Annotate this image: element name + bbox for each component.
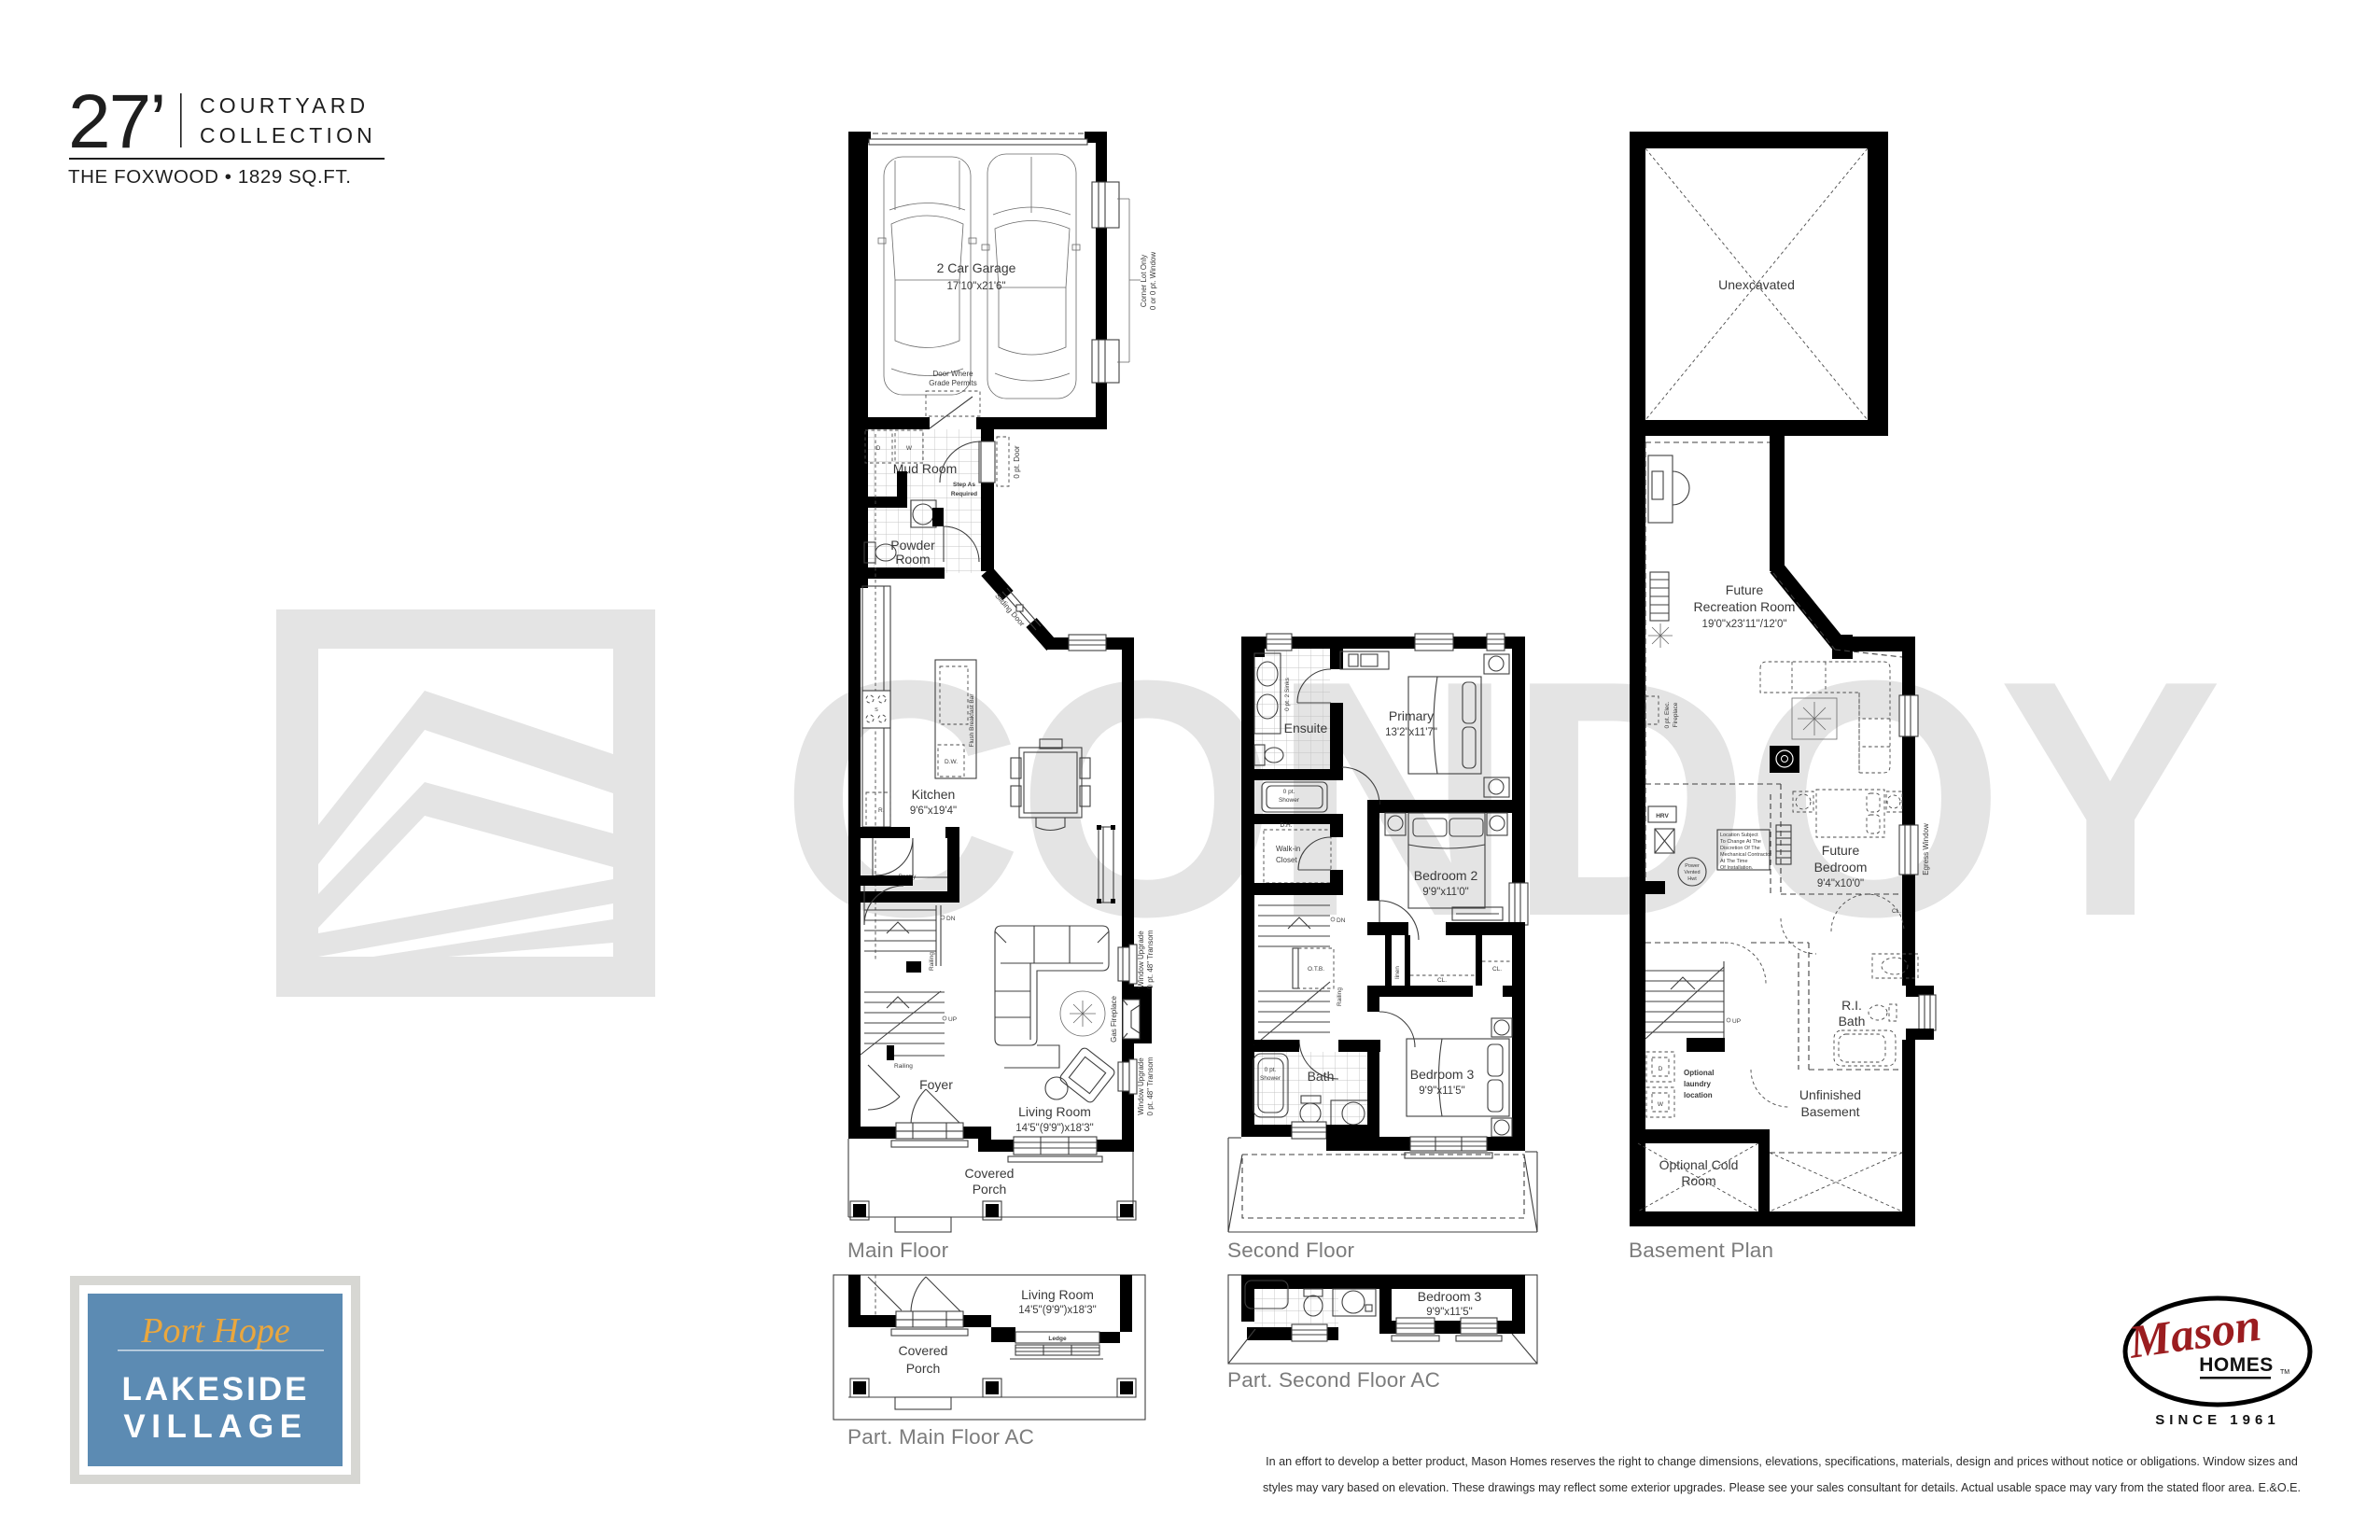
svg-text:UP: UP: [948, 1016, 957, 1023]
svg-text:R.: R.: [878, 807, 885, 814]
svg-text:THE FOXWOOD • 1829 SQ.FT.: THE FOXWOOD • 1829 SQ.FT.: [68, 166, 352, 188]
svg-text:COURTYARD: COURTYARD: [200, 93, 369, 118]
svg-text:laundry: laundry: [1684, 1080, 1711, 1088]
svg-text:Railing: Railing: [894, 1063, 913, 1070]
svg-text:VILLAGE: VILLAGE: [123, 1408, 307, 1445]
svg-text:Future: Future: [1726, 582, 1764, 597]
svg-text:UP: UP: [1732, 1018, 1741, 1025]
svg-text:Ledge: Ledge: [1048, 1336, 1067, 1342]
svg-text:0 pt. 48" Transom: 0 pt. 48" Transom: [1146, 1057, 1155, 1115]
svg-text:Basement: Basement: [1800, 1104, 1859, 1119]
svg-text:Railing: Railing: [1337, 987, 1343, 1006]
svg-text:LAKESIDE: LAKESIDE: [122, 1371, 310, 1407]
svg-text:0 pt. 48" Transom: 0 pt. 48" Transom: [1146, 930, 1155, 988]
svg-text:Covered: Covered: [899, 1343, 948, 1358]
svg-text:2 Car Garage: 2 Car Garage: [937, 260, 1016, 275]
svg-text:linen: linen: [1394, 966, 1401, 979]
svg-text:Primary: Primary: [1389, 708, 1434, 723]
svg-text:Location Subject: Location Subject: [1720, 833, 1758, 838]
svg-text:0 pt.: 0 pt.: [1283, 789, 1295, 795]
svg-text:9'9"x11'5": 9'9"x11'5": [1419, 1085, 1464, 1097]
svg-text:0 pt. Door: 0 pt. Door: [1013, 445, 1021, 478]
svg-text:Covered: Covered: [965, 1166, 1015, 1181]
svg-text:Flush Breakfast Bar: Flush Breakfast Bar: [969, 693, 975, 748]
svg-text:Room: Room: [895, 552, 930, 567]
svg-text:Window Upgrade: Window Upgrade: [1137, 1057, 1145, 1115]
svg-text:Bedroom 2: Bedroom 2: [1414, 868, 1478, 883]
svg-text:In an effort to develop a bett: In an effort to develop a better product…: [1266, 1455, 2298, 1468]
svg-text:Basement Plan: Basement Plan: [1629, 1239, 1773, 1262]
svg-text:Bedroom 3: Bedroom 3: [1418, 1289, 1482, 1304]
svg-text:0 pt.: 0 pt.: [1265, 1067, 1277, 1073]
svg-text:DN: DN: [1337, 917, 1346, 924]
svg-text:Porch: Porch: [906, 1361, 941, 1376]
svg-text:Bedroom: Bedroom: [1814, 860, 1868, 875]
svg-text:Fireplace: Fireplace: [1673, 702, 1679, 727]
svg-text:To Change At The: To Change At The: [1720, 839, 1761, 845]
svg-text:DN: DN: [946, 916, 956, 922]
svg-text:0 or 0 pt. Window: 0 or 0 pt. Window: [1149, 252, 1157, 310]
svg-text:Grade Permits: Grade Permits: [929, 379, 977, 387]
svg-text:Step As: Step As: [953, 482, 975, 488]
svg-text:Egress Window: Egress Window: [1922, 823, 1930, 875]
svg-text:Door Where: Door Where: [932, 370, 973, 378]
svg-text:D: D: [876, 445, 881, 452]
svg-text:Main Floor: Main Floor: [847, 1239, 949, 1262]
svg-text:SINCE 1961: SINCE 1961: [2155, 1412, 2279, 1428]
svg-text:O.T.B.: O.T.B.: [1308, 966, 1324, 973]
svg-text:CL.: CL.: [1437, 977, 1447, 984]
svg-text:Walk-in: Walk-in: [1276, 845, 1300, 853]
svg-text:Closet: Closet: [1276, 856, 1297, 864]
svg-text:styles may vary based on eleva: styles may vary based on elevation. Thes…: [1263, 1481, 2301, 1494]
svg-text:COLLECTION: COLLECTION: [200, 123, 376, 147]
svg-text:13'2"x11'7": 13'2"x11'7": [1385, 727, 1437, 738]
svg-text:Kitchen: Kitchen: [912, 787, 956, 802]
svg-text:Corner Lot Only: Corner Lot Only: [1140, 255, 1148, 307]
svg-text:Bedroom 3: Bedroom 3: [1410, 1067, 1475, 1082]
svg-text:HRV: HRV: [1656, 813, 1669, 819]
svg-text:Gas Fireplace: Gas Fireplace: [1110, 996, 1118, 1043]
svg-text:19'0"x23'11"/12'0": 19'0"x23'11"/12'0": [1702, 619, 1787, 630]
svg-text:CL.: CL.: [1492, 966, 1502, 973]
svg-text:14'5"(9'9")x18'3": 14'5"(9'9")x18'3": [1018, 1305, 1096, 1316]
svg-text:Future: Future: [1822, 843, 1860, 858]
svg-text:W: W: [1658, 1101, 1664, 1108]
svg-text:location: location: [1684, 1091, 1713, 1099]
svg-text:R.I.: R.I.: [1841, 998, 1862, 1013]
svg-text:27’: 27’: [68, 79, 164, 164]
svg-text:W: W: [906, 445, 913, 452]
svg-text:Optional Cold: Optional Cold: [1659, 1157, 1739, 1172]
svg-text:Unfinished: Unfinished: [1799, 1087, 1861, 1102]
svg-text:Mechanical Contractor: Mechanical Contractor: [1720, 852, 1771, 858]
svg-text:Room: Room: [1681, 1173, 1715, 1188]
svg-text:S: S: [875, 707, 878, 713]
svg-text:D: D: [1659, 1066, 1663, 1072]
svg-text:14'5"(9'9")x18'3": 14'5"(9'9")x18'3": [1015, 1123, 1093, 1134]
svg-text:9'9"x11'0": 9'9"x11'0": [1422, 887, 1468, 898]
svg-text:Discretion Of The: Discretion Of The: [1720, 846, 1760, 851]
svg-text:Shower: Shower: [1260, 1075, 1281, 1082]
svg-text:9'4"x10'0": 9'4"x10'0": [1817, 878, 1864, 889]
svg-text:TM: TM: [2280, 1369, 2289, 1376]
svg-text:Ensuite: Ensuite: [1284, 721, 1328, 735]
svg-text:9'9"x11'5": 9'9"x11'5": [1426, 1307, 1472, 1318]
svg-text:Foyer: Foyer: [919, 1077, 953, 1092]
svg-text:Part. Main Floor AC: Part. Main Floor AC: [847, 1425, 1034, 1449]
svg-text:Second Floor: Second Floor: [1227, 1239, 1355, 1262]
svg-text:Power: Power: [1685, 863, 1700, 869]
svg-text:Unexcavated: Unexcavated: [1718, 277, 1795, 292]
svg-text:Railing: Railing: [929, 952, 935, 971]
svg-text:Part. Second Floor AC: Part. Second Floor AC: [1227, 1368, 1440, 1392]
svg-text:Required: Required: [951, 491, 977, 497]
svg-text:9'6"x19'4": 9'6"x19'4": [910, 805, 957, 817]
svg-text:17'10"x21'6": 17'10"x21'6": [946, 281, 1005, 292]
svg-text:D.H.: D.H.: [1281, 822, 1293, 829]
svg-text:Vented: Vented: [1684, 870, 1700, 875]
svg-text:Living Room: Living Room: [1021, 1287, 1094, 1302]
svg-text:D.W.: D.W.: [945, 759, 958, 765]
svg-text:0 pt. 2 Sinks: 0 pt. 2 Sinks: [1284, 677, 1291, 711]
svg-text:Shower: Shower: [1279, 797, 1300, 804]
svg-text:Of Installation.: Of Installation.: [1720, 865, 1754, 871]
svg-text:0 pt. Elec.: 0 pt. Elec.: [1664, 701, 1671, 728]
svg-text:HOMES: HOMES: [2199, 1354, 2274, 1376]
svg-text:CL.: CL.: [1892, 908, 1901, 915]
svg-text:Optional: Optional: [1684, 1069, 1714, 1077]
svg-text:Bath: Bath: [1839, 1014, 1866, 1029]
svg-text:Bath: Bath: [1308, 1069, 1335, 1084]
svg-text:At The Time: At The Time: [1720, 859, 1748, 864]
svg-text:Powder: Powder: [890, 538, 935, 553]
svg-text:Porch: Porch: [973, 1182, 1007, 1197]
svg-text:Living Room: Living Room: [1018, 1104, 1091, 1119]
svg-text:Port Hope: Port Hope: [140, 1311, 290, 1351]
svg-text:Hwt: Hwt: [1687, 876, 1697, 882]
svg-text:Window Upgrade: Window Upgrade: [1137, 931, 1145, 988]
svg-text:Recreation Room: Recreation Room: [1694, 599, 1796, 614]
